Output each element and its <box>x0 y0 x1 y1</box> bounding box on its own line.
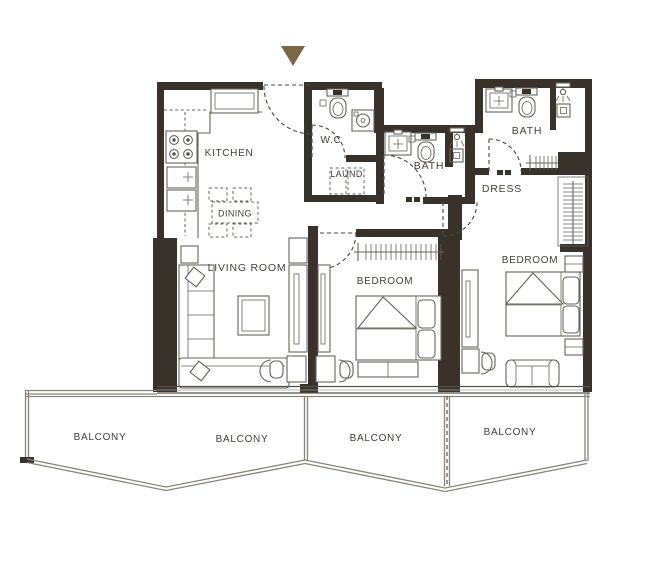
tv-unit <box>289 265 307 352</box>
desk <box>316 356 335 382</box>
loveseat <box>506 360 559 387</box>
bedroom1-label: BEDROOM <box>357 276 414 287</box>
balcony-area: BALCONY BALCONY BALCONY BALCONY <box>20 390 590 492</box>
desk <box>462 349 479 373</box>
kitchen-label: KITCHEN <box>205 148 254 159</box>
dress-label: DRESS <box>482 183 522 195</box>
door-stop-mark <box>414 197 420 202</box>
bath-sink-faucet <box>495 87 503 91</box>
shower-spray <box>556 96 570 102</box>
kitchen-sink-cabinet <box>167 167 196 188</box>
shower-head-bracket <box>450 128 464 132</box>
living-room: LIVING ROOM <box>179 238 307 388</box>
balcony-label-4: BALCONY <box>484 427 537 438</box>
fridge-icon <box>211 89 258 113</box>
wc-label: W.C <box>321 135 342 146</box>
desk <box>287 356 306 382</box>
shower-drain-inner <box>454 153 460 159</box>
washer-icon <box>352 110 374 131</box>
balcony-label-3: BALCONY <box>350 433 403 444</box>
kitchen-base-cabinet <box>167 190 196 211</box>
wall-bath2-shower-divider <box>550 82 556 130</box>
floor-plan: KITCHEN DINING LIVING ROOM <box>0 0 663 568</box>
pillow <box>418 300 435 328</box>
bedroom1-room: BEDROOM <box>316 243 444 382</box>
door-stop-mark <box>406 197 412 202</box>
wall-step-right <box>475 82 483 133</box>
dining-area: DINING <box>209 188 258 237</box>
wc-room: W.C <box>320 89 374 146</box>
floor-plan-canvas: KITCHEN DINING LIVING ROOM <box>0 0 663 568</box>
shower-drain <box>557 104 570 117</box>
door-stop-mark <box>505 170 511 175</box>
dining-chair <box>233 188 251 201</box>
wall-right-lower <box>583 250 592 392</box>
tv-cabinet-upper <box>289 238 307 263</box>
toilet-bowl <box>418 142 434 162</box>
bedroom2-room: BEDROOM <box>462 255 583 387</box>
shower-drain-inner <box>561 108 567 114</box>
wardrobe <box>318 265 330 352</box>
wall-shower1-divider <box>445 127 453 167</box>
laundry-room: LAUND. <box>330 168 366 194</box>
kitchen-counter-top <box>198 112 262 238</box>
side-table <box>181 246 198 263</box>
toilet-tank-mark <box>333 90 342 95</box>
coffee-table <box>238 296 269 335</box>
wall-bedroom1-top <box>356 229 448 237</box>
entrance-arrow-icon <box>281 46 305 66</box>
desk-chair <box>270 361 283 378</box>
bedroom1-door-arc <box>320 233 356 269</box>
shower-head-icon <box>454 134 459 139</box>
bedroom2-label: BEDROOM <box>502 255 559 266</box>
bath2-room: BATH <box>486 83 570 137</box>
balcony-post-right <box>585 392 588 461</box>
flush-box <box>320 100 326 106</box>
bath-sink-faucet <box>394 130 402 134</box>
shower-head-bracket <box>556 83 570 87</box>
bath2-label: BATH <box>512 125 542 137</box>
bath1-label: BATH <box>414 160 444 172</box>
dining-chair <box>209 188 227 201</box>
balcony-post-left <box>26 390 29 459</box>
closet-hangers-vertical <box>563 184 583 240</box>
stove-icon <box>166 131 197 163</box>
wall-bath2-top <box>475 79 592 88</box>
bath2-door-arc <box>489 139 521 171</box>
pillow <box>418 330 435 358</box>
wall-bath2-bottom-left <box>475 168 489 175</box>
wall-left-upper <box>157 82 164 242</box>
toilet-tank-mark <box>421 134 430 139</box>
balcony-label-1: BALCONY <box>74 432 127 443</box>
pillow <box>563 306 579 333</box>
wall-right-mid <box>585 175 592 250</box>
toilet-bowl <box>330 98 346 118</box>
door-stop-mark <box>497 170 503 175</box>
dining-chair <box>209 224 227 237</box>
living-room-label: LIVING ROOM <box>208 262 287 274</box>
wall-bath2-bottom-right <box>521 168 560 175</box>
pillow <box>563 277 579 304</box>
laundry-label: LAUND. <box>330 169 365 179</box>
toilet-tank-mark <box>522 89 531 94</box>
wall-shower-chunk <box>558 152 592 175</box>
shower-head-icon <box>560 89 565 94</box>
balcony-post-mid <box>305 396 308 460</box>
toilet-bowl <box>519 97 535 117</box>
balcony-label-2: BALCONY <box>216 434 269 445</box>
dining-label: DINING <box>218 209 252 219</box>
wall-bath1-right <box>465 127 475 204</box>
wall-pillar-mid <box>300 384 318 393</box>
wall-wc-right <box>376 88 384 204</box>
wall-wc-bottom <box>346 155 378 162</box>
wall-wc-left <box>304 82 312 202</box>
wall-laundry-bottom <box>304 195 384 202</box>
wall-left-pillar <box>153 238 177 392</box>
dining-chair <box>233 224 251 237</box>
